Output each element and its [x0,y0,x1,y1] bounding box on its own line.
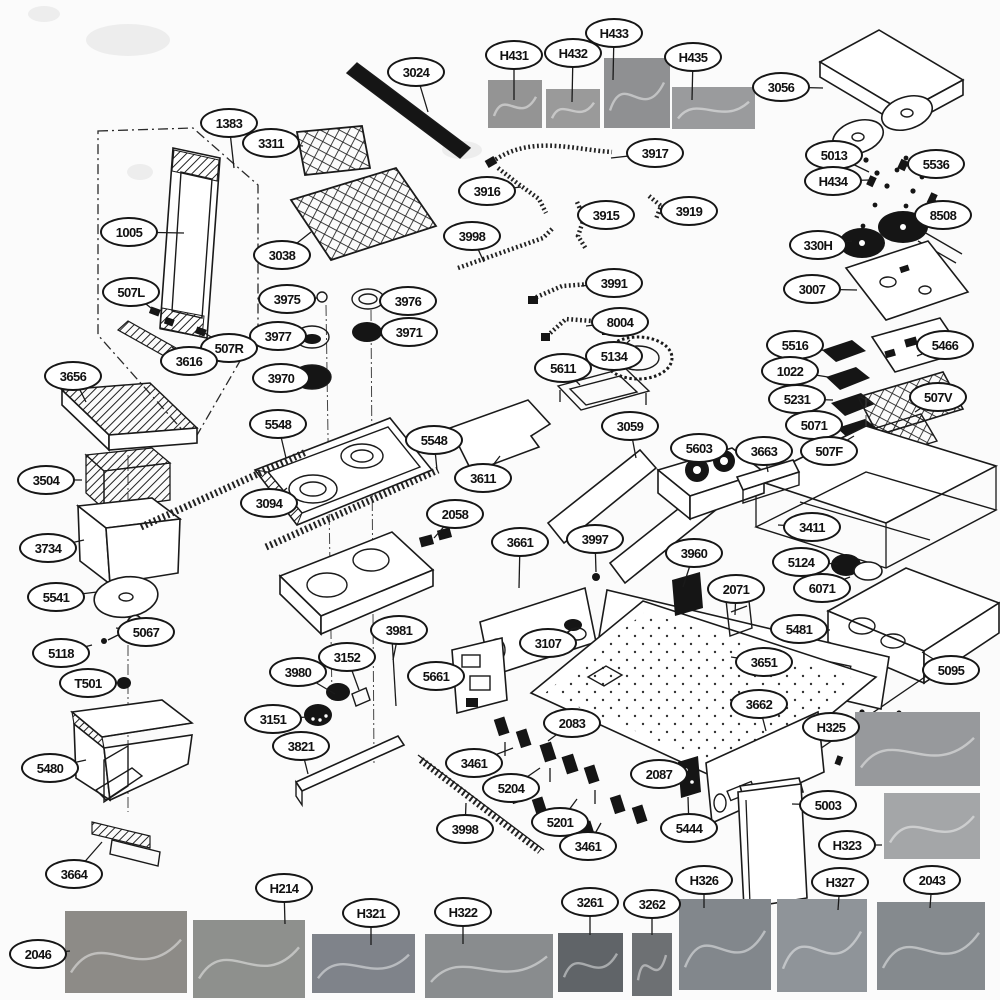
part-label-3151: 3151 [244,704,302,734]
part-label-3504: 3504 [17,465,75,495]
part-label-3059: 3059 [601,411,659,441]
part-label-5611: 5611 [534,353,592,383]
part-label-H321: H321 [342,898,400,928]
part-label-5067: 5067 [117,617,175,647]
part-label-3915: 3915 [577,200,635,230]
part-label-3664: 3664 [45,859,103,889]
part-label-3998: 3998 [436,814,494,844]
part-label-507L: 507L [102,277,160,307]
part-label-8004: 8004 [591,307,649,337]
part-label-3663: 3663 [735,436,793,466]
part-label-5536: 5536 [907,149,965,179]
part-label-2043: 2043 [903,865,961,895]
part-label-3975: 3975 [258,284,316,314]
part-label-5095: 5095 [922,655,980,685]
part-label-2046: 2046 [9,939,67,969]
part-label-3311: 3311 [242,128,300,158]
part-label-2083: 2083 [543,708,601,738]
parts-diagram-canvas: 3024H431H432H433H43530561383331139175013… [0,0,1000,1000]
part-label-3662: 3662 [730,689,788,719]
part-label-H326: H326 [675,865,733,895]
part-label-3821: 3821 [272,731,330,761]
part-label-3919: 3919 [660,196,718,226]
part-label-5480: 5480 [21,753,79,783]
part-label-H435: H435 [664,42,722,72]
part-label-H214: H214 [255,873,313,903]
part-label-3981: 3981 [370,615,428,645]
part-label-H323: H323 [818,830,876,860]
part-label-3997: 3997 [566,524,624,554]
part-label-3094: 3094 [240,488,298,518]
part-label-3970: 3970 [252,363,310,393]
part-label-6071: 6071 [793,573,851,603]
part-label-H434: H434 [804,166,862,196]
part-label-3734: 3734 [19,533,77,563]
part-label-3611: 3611 [454,463,512,493]
part-label-1005: 1005 [100,217,158,247]
part-label-3411: 3411 [783,512,841,542]
part-label-3024: 3024 [387,57,445,87]
part-label-3971: 3971 [380,317,438,347]
part-label-5466: 5466 [916,330,974,360]
part-label-5003: 5003 [799,790,857,820]
part-label-1022: 1022 [761,356,819,386]
part-label-3152: 3152 [318,642,376,672]
part-label-2071: 2071 [707,574,765,604]
part-label-507F: 507F [800,436,858,466]
part-label-3980: 3980 [269,657,327,687]
part-label-H327: H327 [811,867,869,897]
part-label-3960: 3960 [665,538,723,568]
part-label-5444: 5444 [660,813,718,843]
part-label-3656: 3656 [44,361,102,391]
part-label-5204: 5204 [482,773,540,803]
part-label-H433: H433 [585,18,643,48]
part-label-2058: 2058 [426,499,484,529]
part-label-8508: 8508 [914,200,972,230]
part-label-507V: 507V [909,382,967,412]
part-label-T501: T501 [59,668,117,698]
part-label-5118: 5118 [32,638,90,668]
part-label-5661: 5661 [407,661,465,691]
part-label-330H: 330H [789,230,847,260]
part-label-3461: 3461 [445,748,503,778]
part-label-3976: 3976 [379,286,437,316]
part-label-5541: 5541 [27,582,85,612]
part-label-5481: 5481 [770,614,828,644]
part-label-3616: 3616 [160,346,218,376]
part-label-H325: H325 [802,712,860,742]
part-label-3107: 3107 [519,628,577,658]
part-label-5548: 5548 [249,409,307,439]
part-label-3056: 3056 [752,72,810,102]
part-label-3991: 3991 [585,268,643,298]
part-label-3917: 3917 [626,138,684,168]
part-label-3261: 3261 [561,887,619,917]
part-label-3262: 3262 [623,889,681,919]
part-label-H322: H322 [434,897,492,927]
part-label-2087: 2087 [630,759,688,789]
part-label-3038: 3038 [253,240,311,270]
part-label-5134: 5134 [585,341,643,371]
part-label-3461: 3461 [559,831,617,861]
part-label-3007: 3007 [783,274,841,304]
part-label-5603: 5603 [670,433,728,463]
part-label-3661: 3661 [491,527,549,557]
part-label-3916: 3916 [458,176,516,206]
part-label-H431: H431 [485,40,543,70]
part-label-3998: 3998 [443,221,501,251]
callout-labels: 3024H431H432H433H43530561383331139175013… [0,0,1000,1000]
part-label-3651: 3651 [735,647,793,677]
part-label-5548: 5548 [405,425,463,455]
